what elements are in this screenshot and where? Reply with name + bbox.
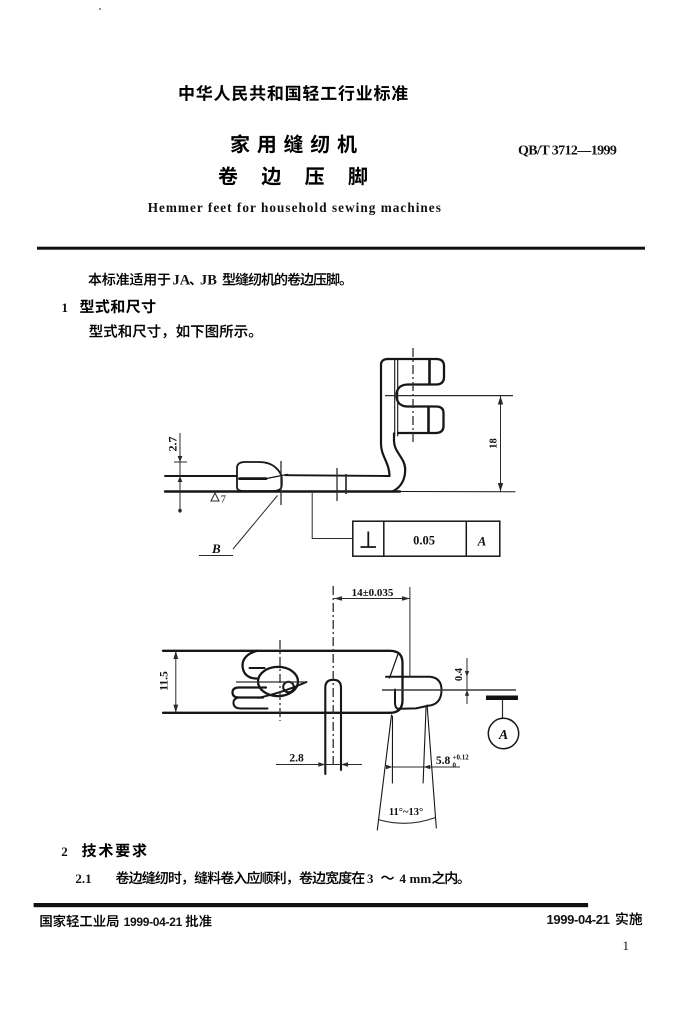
svg-text:B: B xyxy=(211,541,221,556)
svg-text:+0.12: +0.12 xyxy=(453,754,470,762)
svg-text:5.8: 5.8 xyxy=(436,755,451,767)
svg-text:1: 1 xyxy=(62,300,69,315)
svg-text:0.4: 0.4 xyxy=(454,667,465,681)
svg-text:11°~13°: 11°~13° xyxy=(389,807,423,818)
svg-text:1999-04-21: 1999-04-21 xyxy=(124,915,183,929)
svg-text:4: 4 xyxy=(400,871,407,886)
svg-text:11.5: 11.5 xyxy=(159,671,171,691)
svg-text:14±0.035: 14±0.035 xyxy=(352,587,394,599)
svg-text:1999-04-21: 1999-04-21 xyxy=(547,912,610,927)
svg-text:JB: JB xyxy=(200,273,217,289)
svg-text:Hemmer feet for household sewi: Hemmer feet for household sewing machine… xyxy=(148,200,442,215)
svg-text:3: 3 xyxy=(367,871,374,886)
svg-text:A: A xyxy=(498,728,508,743)
svg-text:0.05: 0.05 xyxy=(413,534,435,548)
svg-text:18: 18 xyxy=(489,438,500,449)
svg-text:1: 1 xyxy=(623,938,630,953)
svg-text:2.7: 2.7 xyxy=(166,437,180,452)
svg-text:A: A xyxy=(477,534,487,549)
svg-text:QB/T 3712—1999: QB/T 3712—1999 xyxy=(518,144,617,159)
svg-text:2: 2 xyxy=(61,844,67,859)
svg-text:7: 7 xyxy=(221,494,227,506)
svg-text:mm: mm xyxy=(410,871,432,886)
svg-text:JA: JA xyxy=(173,273,191,289)
svg-text:2.8: 2.8 xyxy=(289,753,304,765)
svg-text:0: 0 xyxy=(453,762,457,770)
svg-text:2.1: 2.1 xyxy=(75,871,91,886)
